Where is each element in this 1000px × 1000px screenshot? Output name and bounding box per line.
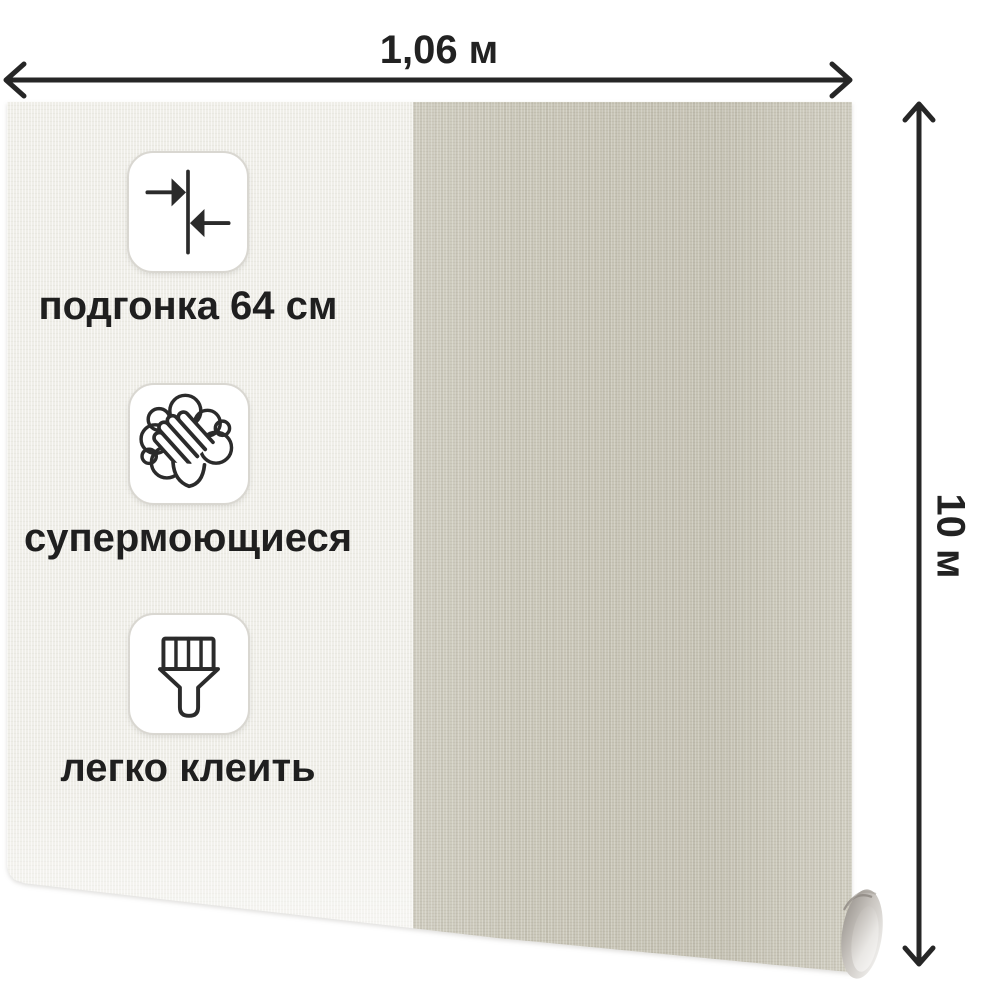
feature-card-pattern-match: [127, 151, 249, 273]
pattern-match-icon: [129, 152, 247, 272]
width-dimension-arrow: [0, 58, 856, 102]
feature-label-washable: супермоющиеся: [24, 516, 352, 561]
feature-label-easy-glue: легко клеить: [60, 746, 315, 791]
paint-brush-icon: [130, 614, 248, 734]
product-image: 1,06 м: [0, 0, 1000, 1000]
washing-hands-icon: [130, 384, 248, 504]
length-dimension-label: 10 м: [928, 493, 973, 578]
wallpaper-beige-panel: [413, 102, 852, 974]
wallpaper-roll-curl-icon: [840, 884, 888, 980]
feature-card-washable: [128, 383, 250, 505]
feature-label-pattern-match: подгонка 64 см: [38, 284, 337, 329]
feature-card-easy-glue: [128, 613, 250, 735]
